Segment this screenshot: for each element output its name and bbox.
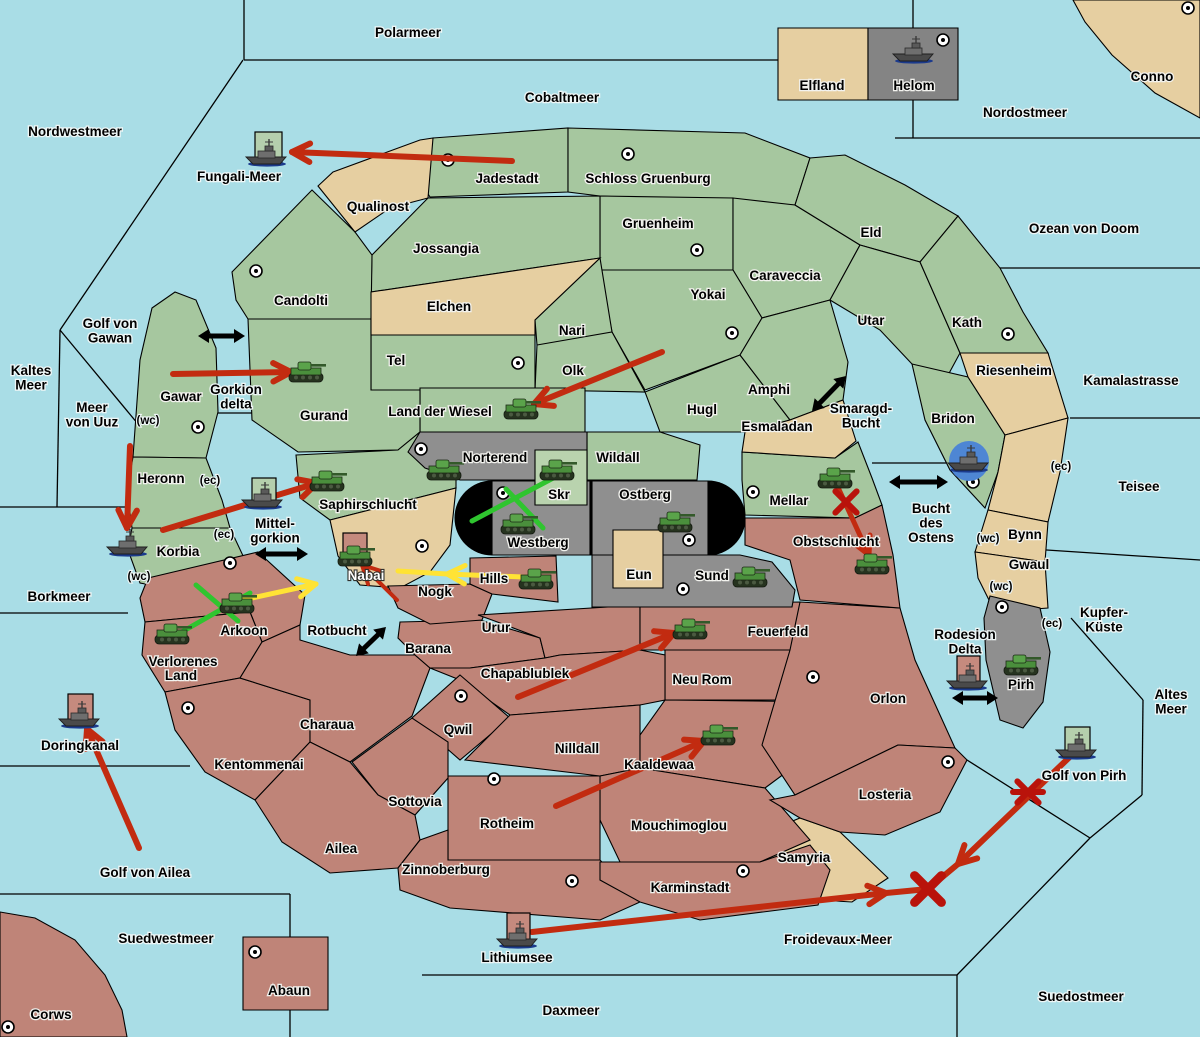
- sea-zone-label-meer-von-uuz: Meer: [76, 400, 108, 415]
- territory-label-zinnoberburg: Zinnoberburg: [402, 862, 490, 877]
- sea-zone-label-ozean-von-doom: Ozean von Doom: [1029, 221, 1139, 236]
- sea-zone-label-suedostmeer: Suedostmeer: [1038, 989, 1124, 1004]
- territory-label-land-der-wiesel: Land der Wiesel: [388, 404, 491, 419]
- territory-label-kaaldewaa: Kaaldewaa: [624, 757, 694, 772]
- territory-label-neu-rom: Neu Rom: [672, 672, 731, 687]
- sea-zone-label-altes-meer: Meer: [1155, 702, 1187, 717]
- territory-label-candolti: Candolti: [274, 293, 328, 308]
- sea-zone-label-gorkion-delta: delta: [220, 397, 252, 412]
- sea-zone-label-rodesion-delta: Rodesion: [934, 627, 996, 642]
- territory-label-karminstadt: Karminstadt: [651, 880, 730, 895]
- territory-label-yokai: Yokai: [690, 287, 725, 302]
- territory-label-qualinost: Qualinost: [347, 199, 410, 214]
- town-marker: [416, 540, 428, 552]
- sea-zone-label-fungali-meer: Fungali-Meer: [197, 169, 282, 184]
- territory-label-wildall: Wildall: [596, 450, 639, 465]
- territory-label-verlorenes-land: Land: [165, 668, 197, 683]
- territory-label-esmaladan: Esmaladan: [741, 419, 812, 434]
- sea-zone-label-nordostmeer: Nordostmeer: [983, 105, 1068, 120]
- territory-label-eun: Eun: [626, 567, 652, 582]
- sea-zone-label-kaltes-meer: Meer: [15, 378, 47, 393]
- territory-label-elchen: Elchen: [427, 299, 471, 314]
- territory-label-nari: Nari: [559, 323, 585, 338]
- town-marker: [2, 1021, 14, 1033]
- territory-label-abaun: Abaun: [268, 983, 310, 998]
- territory-label-rotheim: Rotheim: [480, 816, 534, 831]
- territory-label-bynn: Bynn: [1008, 527, 1042, 542]
- territory-label-olk: Olk: [562, 363, 584, 378]
- strategy-map: JadestadtSchloss GruenburgGruenheimCarav…: [0, 0, 1200, 1037]
- territory-label-riesenheim: Riesenheim: [976, 363, 1052, 378]
- town-marker: [182, 702, 194, 714]
- sea-zone-label-mittel-gorkion: Mittel-: [255, 516, 295, 531]
- territory-label-obstschlucht: Obstschlucht: [793, 534, 880, 549]
- territory-label-bridon: Bridon: [931, 411, 975, 426]
- sea-zone-label-doringkanal: Doringkanal: [41, 738, 119, 753]
- territory-label-ostberg: Ostberg: [619, 487, 671, 502]
- territory-label-elfland: Elfland: [799, 78, 844, 93]
- territory-label-kentommenai: Kentommenai: [214, 757, 303, 772]
- yellow-route-line: [398, 571, 447, 574]
- territory-label-arkoon: Arkoon: [220, 623, 267, 638]
- territory-label-caraveccia: Caraveccia: [749, 268, 821, 283]
- sea-zone-label-nordwestmeer: Nordwestmeer: [28, 124, 123, 139]
- town-marker: [683, 534, 695, 546]
- town-marker: [1182, 2, 1194, 14]
- territory-label-jadestadt: Jadestadt: [475, 171, 539, 186]
- territory-label-gawar: Gawar: [160, 389, 202, 404]
- canal-annotation-label: (wc): [128, 571, 151, 583]
- territory-label-utar: Utar: [857, 313, 885, 328]
- town-marker: [249, 946, 261, 958]
- territory-label-nogk: Nogk: [418, 584, 452, 599]
- sea-zone-label-bucht-des-ostens: Ostens: [908, 530, 954, 545]
- sea-zone-label-cobaltmeer: Cobaltmeer: [525, 90, 600, 105]
- territory-label-korbia: Korbia: [157, 544, 200, 559]
- territory-label-helom: Helom: [893, 78, 934, 93]
- canal-annotation-label: (wc): [990, 581, 1013, 593]
- territory-label-hugl: Hugl: [687, 402, 717, 417]
- territory-label-mouchimoglou: Mouchimoglou: [631, 818, 727, 833]
- territory-label-saphirschlucht: Saphirschlucht: [319, 497, 417, 512]
- sea-zone-label-smaragd-bucht: Bucht: [842, 416, 881, 431]
- sea-zone-label-bucht-des-ostens: des: [919, 516, 942, 531]
- territory-label-mellar: Mellar: [769, 493, 809, 508]
- town-marker: [677, 583, 689, 595]
- canal-annotation-label: (ec): [1051, 461, 1072, 473]
- canal-annotation-label: (wc): [977, 533, 1000, 545]
- territory-label-chapablublek: Chapablublek: [481, 666, 570, 681]
- town-marker: [691, 244, 703, 256]
- territory-label-norterend: Norterend: [463, 450, 528, 465]
- town-marker: [415, 443, 427, 455]
- sea-zone-label-bucht-des-ostens: Bucht: [912, 501, 951, 516]
- town-marker: [224, 557, 236, 569]
- territory-label-pirh: Pirh: [1008, 677, 1034, 692]
- territory-label-corws: Corws: [30, 1007, 71, 1022]
- town-marker: [250, 265, 262, 277]
- sea-zone-label-golf-von-ailea: Golf von Ailea: [100, 865, 191, 880]
- canal-annotation-label: (ec): [214, 529, 235, 541]
- territory-label-urur: Urur: [482, 620, 511, 635]
- town-marker: [622, 148, 634, 160]
- sea-zone-label-golf-von-pirh: Golf von Pirh: [1042, 768, 1127, 783]
- game-map-stage: JadestadtSchloss GruenburgGruenheimCarav…: [0, 0, 1200, 1037]
- territory-label-ailea: Ailea: [325, 841, 358, 856]
- sea-zone-label-kaltes-meer: Kaltes: [11, 363, 52, 378]
- sea-zone-label-polarmeer: Polarmeer: [375, 25, 442, 40]
- town-marker: [455, 690, 467, 702]
- territory-label-schloss-gruenburg: Schloss Gruenburg: [585, 171, 710, 186]
- territory-label-kath: Kath: [952, 315, 982, 330]
- territory-label-sund: Sund: [695, 568, 729, 583]
- territory-label-conno: Conno: [1131, 69, 1174, 84]
- territory-label-gwaul: Gwaul: [1009, 557, 1050, 572]
- territory-gruenheim[interactable]: [600, 196, 733, 270]
- territory-label-eld: Eld: [860, 225, 881, 240]
- sea-zone-label-rotbucht: Rotbucht: [307, 623, 367, 638]
- sea-zone-label-rodesion-delta: Delta: [948, 642, 982, 657]
- territory-label-tel: Tel: [387, 353, 406, 368]
- canal-annotation-label: (wc): [137, 415, 160, 427]
- sea-zone-label-kupfer-küste: Küste: [1085, 620, 1123, 635]
- sea-zone-label-teisee: Teisee: [1118, 479, 1160, 494]
- town-marker: [737, 865, 749, 877]
- territory-label-nabai: Nabai: [348, 568, 385, 583]
- town-marker: [1002, 328, 1014, 340]
- territory-label-amphi: Amphi: [748, 382, 790, 397]
- territory-label-westberg: Westberg: [507, 535, 568, 550]
- territory-label-hills: Hills: [480, 571, 509, 586]
- territory-label-samyria: Samyria: [778, 850, 831, 865]
- territory-label-barana: Barana: [405, 641, 451, 656]
- territory-label-skr: Skr: [548, 487, 571, 502]
- sea-zone-label-mittel-gorkion: gorkion: [250, 531, 300, 546]
- sea-zone-label-suedwestmeer: Suedwestmeer: [118, 931, 214, 946]
- town-marker: [996, 601, 1008, 613]
- town-marker: [726, 327, 738, 339]
- territory-label-verlorenes-land: Verlorenes: [148, 654, 217, 669]
- territory-label-charaua: Charaua: [300, 717, 355, 732]
- territory-label-feuerfeld: Feuerfeld: [748, 624, 809, 639]
- sea-zone-label-kamalastrasse: Kamalastrasse: [1083, 373, 1179, 388]
- sea-zone-label-smaragd-bucht: Smaragd-: [830, 401, 892, 416]
- territory-label-qwil: Qwil: [444, 722, 473, 737]
- sea-zone-label-lithiumsee: Lithiumsee: [481, 950, 553, 965]
- territory-label-nilldall: Nilldall: [555, 741, 599, 756]
- sea-zone-label-golf-von-gawan: Gawan: [88, 331, 132, 346]
- territory-label-orlon: Orlon: [870, 691, 906, 706]
- canal-annotation-label: (ec): [200, 475, 221, 487]
- territory-label-gurand: Gurand: [300, 408, 348, 423]
- town-marker: [512, 357, 524, 369]
- sea-zone-label-golf-von-gawan: Golf von: [83, 316, 138, 331]
- sea-zone-label-kupfer-küste: Kupfer-: [1080, 605, 1128, 620]
- town-marker: [747, 486, 759, 498]
- sea-zone-label-altes-meer: Altes: [1154, 687, 1187, 702]
- sea-zone-label-meer-von-uuz: von Uuz: [66, 415, 119, 430]
- town-marker: [192, 421, 204, 433]
- territory-label-jossangia: Jossangia: [413, 241, 480, 256]
- sea-zone-label-daxmeer: Daxmeer: [542, 1003, 600, 1018]
- town-marker: [942, 756, 954, 768]
- territory-label-sottovia: Sottovia: [388, 794, 442, 809]
- town-marker: [807, 671, 819, 683]
- territory-label-gruenheim: Gruenheim: [622, 216, 693, 231]
- sea-zone-label-gorkion-delta: Gorkion: [210, 382, 262, 397]
- canal-annotation-label: (ec): [1042, 618, 1063, 630]
- sea-zone-label-borkmeer: Borkmeer: [27, 589, 91, 604]
- territory-label-heronn: Heronn: [137, 471, 184, 486]
- town-marker: [566, 875, 578, 887]
- sea-zone-label-froidevaux-meer: Froidevaux-Meer: [784, 932, 893, 947]
- town-marker: [488, 773, 500, 785]
- territory-label-losteria: Losteria: [859, 787, 912, 802]
- town-marker: [937, 34, 949, 46]
